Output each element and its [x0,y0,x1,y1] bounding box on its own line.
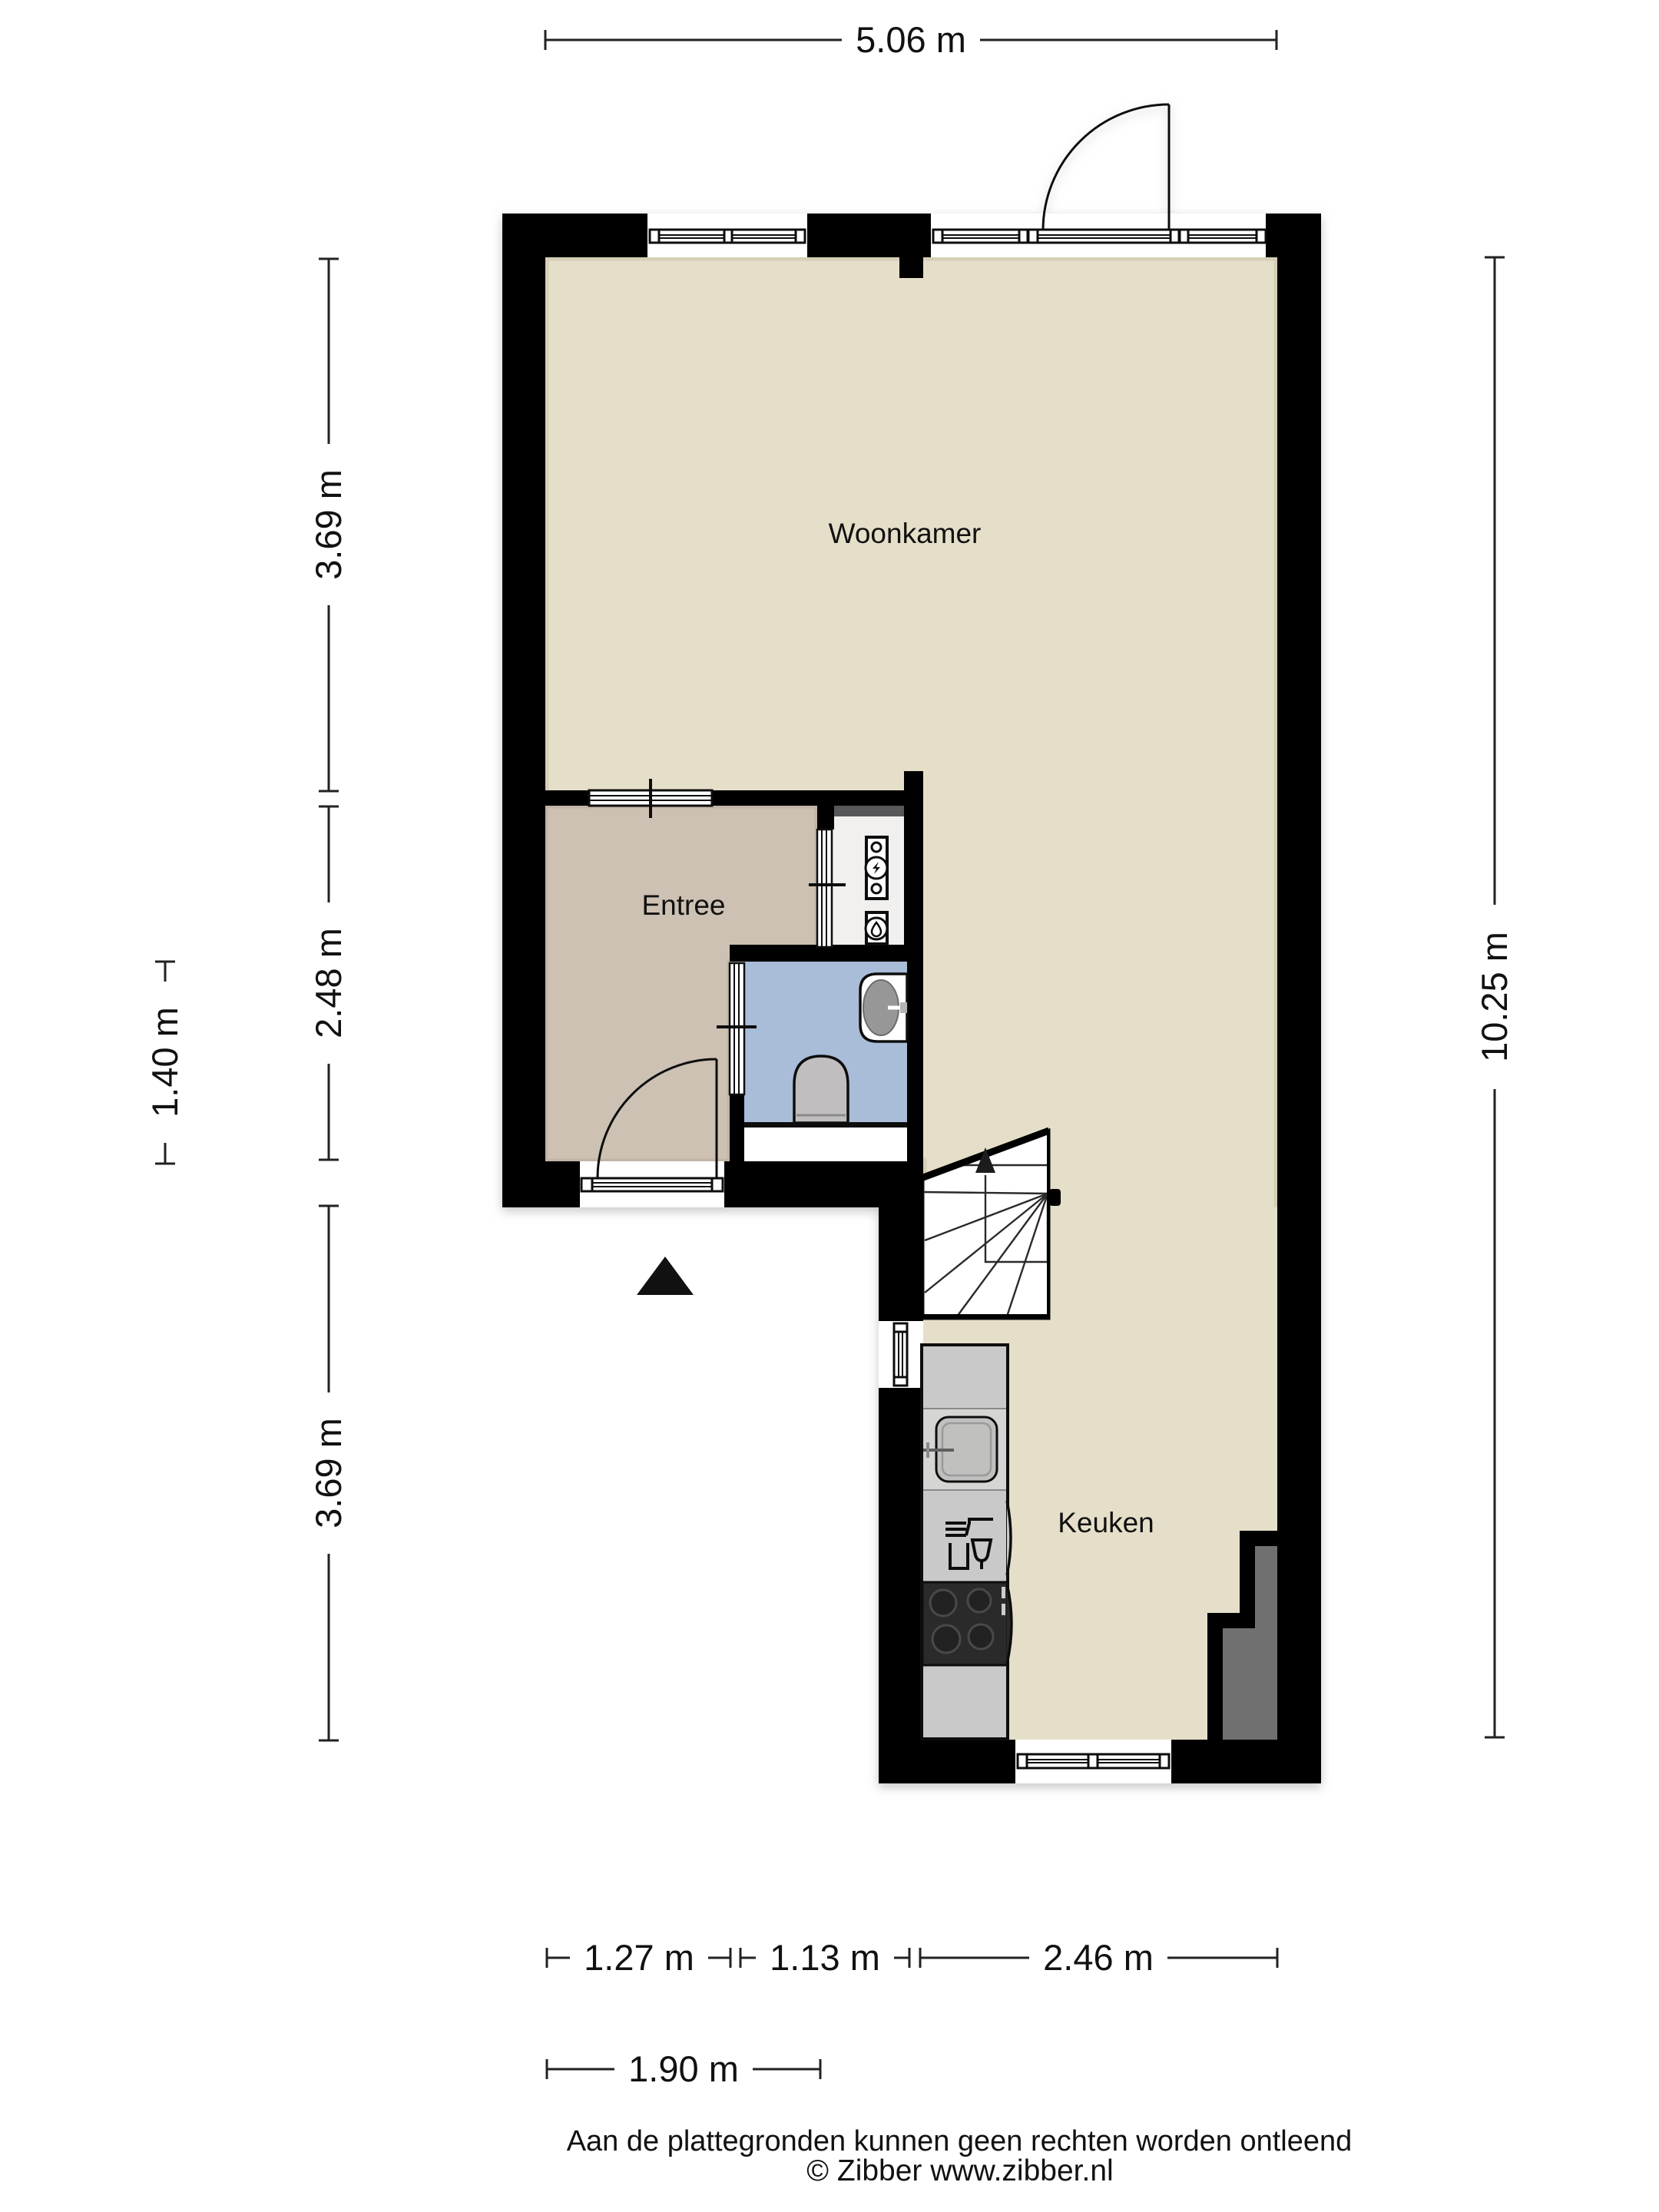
svg-text:3.69 m: 3.69 m [308,469,349,580]
svg-text:2.46 m: 2.46 m [1043,1937,1154,1978]
svg-text:10.25 m: 10.25 m [1474,932,1515,1062]
svg-text:Entree: Entree [641,889,725,921]
svg-text:Aan de plattegronden kunnen ge: Aan de plattegronden kunnen geen rechten… [567,2125,1353,2157]
svg-text:Woonkamer: Woonkamer [829,518,982,549]
svg-text:1.90 m: 1.90 m [628,2048,739,2089]
svg-text:1.13 m: 1.13 m [770,1937,880,1978]
svg-text:5.06 m: 5.06 m [856,19,966,60]
svg-text:1.27 m: 1.27 m [584,1937,694,1978]
svg-text:1.40 m: 1.40 m [144,1007,185,1118]
svg-text:Keuken: Keuken [1058,1507,1154,1538]
svg-text:2.48 m: 2.48 m [308,928,349,1038]
svg-text:3.69 m: 3.69 m [308,1418,349,1528]
svg-text:© Zibber www.zibber.nl: © Zibber www.zibber.nl [806,2154,1113,2187]
